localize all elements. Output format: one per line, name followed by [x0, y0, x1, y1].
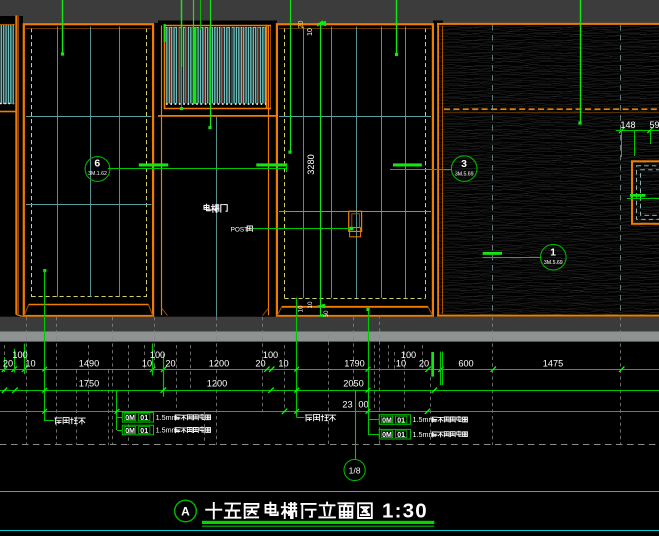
svg-text:3: 3	[461, 158, 467, 170]
svg-text:1.5mm: 1.5mm	[413, 415, 435, 424]
svg-text:20: 20	[165, 358, 175, 368]
svg-text:1475: 1475	[543, 358, 563, 368]
svg-text:3M.5.69: 3M.5.69	[544, 260, 563, 266]
svg-text:1200: 1200	[209, 358, 229, 368]
svg-text:100: 100	[263, 350, 278, 360]
svg-text:1: 1	[550, 247, 556, 259]
svg-text:01: 01	[397, 417, 405, 424]
svg-text:100: 100	[401, 350, 416, 360]
svg-text:01: 01	[140, 428, 148, 435]
svg-text:50: 50	[323, 310, 330, 318]
svg-text:0M: 0M	[382, 432, 392, 439]
svg-text:100: 100	[150, 350, 165, 360]
svg-text:POST: POST	[231, 226, 248, 233]
svg-text:2050: 2050	[343, 378, 363, 388]
svg-text:20: 20	[419, 358, 429, 368]
svg-text:0M: 0M	[125, 428, 135, 435]
svg-text:01: 01	[397, 432, 405, 439]
svg-text:1.5mm: 1.5mm	[413, 430, 435, 439]
svg-text:0M: 0M	[382, 417, 392, 424]
svg-text:A: A	[181, 504, 190, 518]
svg-text:3M.1.62: 3M.1.62	[88, 171, 107, 177]
svg-text:10: 10	[25, 358, 35, 368]
svg-text:3M.5.69: 3M.5.69	[455, 172, 474, 178]
svg-text:10: 10	[298, 305, 305, 313]
svg-text:10: 10	[307, 301, 314, 309]
svg-text:1790: 1790	[344, 358, 364, 368]
svg-text:1.5mm: 1.5mm	[156, 413, 178, 422]
svg-text:1750: 1750	[79, 378, 99, 388]
svg-text:59: 59	[649, 120, 659, 130]
svg-text:148: 148	[620, 120, 635, 130]
svg-text:1490: 1490	[79, 358, 99, 368]
svg-text:00: 00	[358, 399, 368, 409]
svg-text:1:30: 1:30	[382, 499, 428, 522]
svg-text:1200: 1200	[207, 378, 227, 388]
svg-text:20: 20	[298, 21, 305, 29]
svg-text:6: 6	[94, 157, 100, 169]
svg-text:10: 10	[278, 358, 288, 368]
svg-text:10: 10	[307, 28, 314, 36]
svg-text:23: 23	[342, 399, 352, 409]
svg-text:1.5mm: 1.5mm	[156, 426, 178, 435]
svg-text:600: 600	[458, 358, 473, 368]
svg-text:1/8: 1/8	[349, 466, 361, 476]
svg-text:0M: 0M	[125, 415, 135, 422]
svg-text:01: 01	[140, 415, 148, 422]
svg-text:3280: 3280	[306, 154, 316, 174]
